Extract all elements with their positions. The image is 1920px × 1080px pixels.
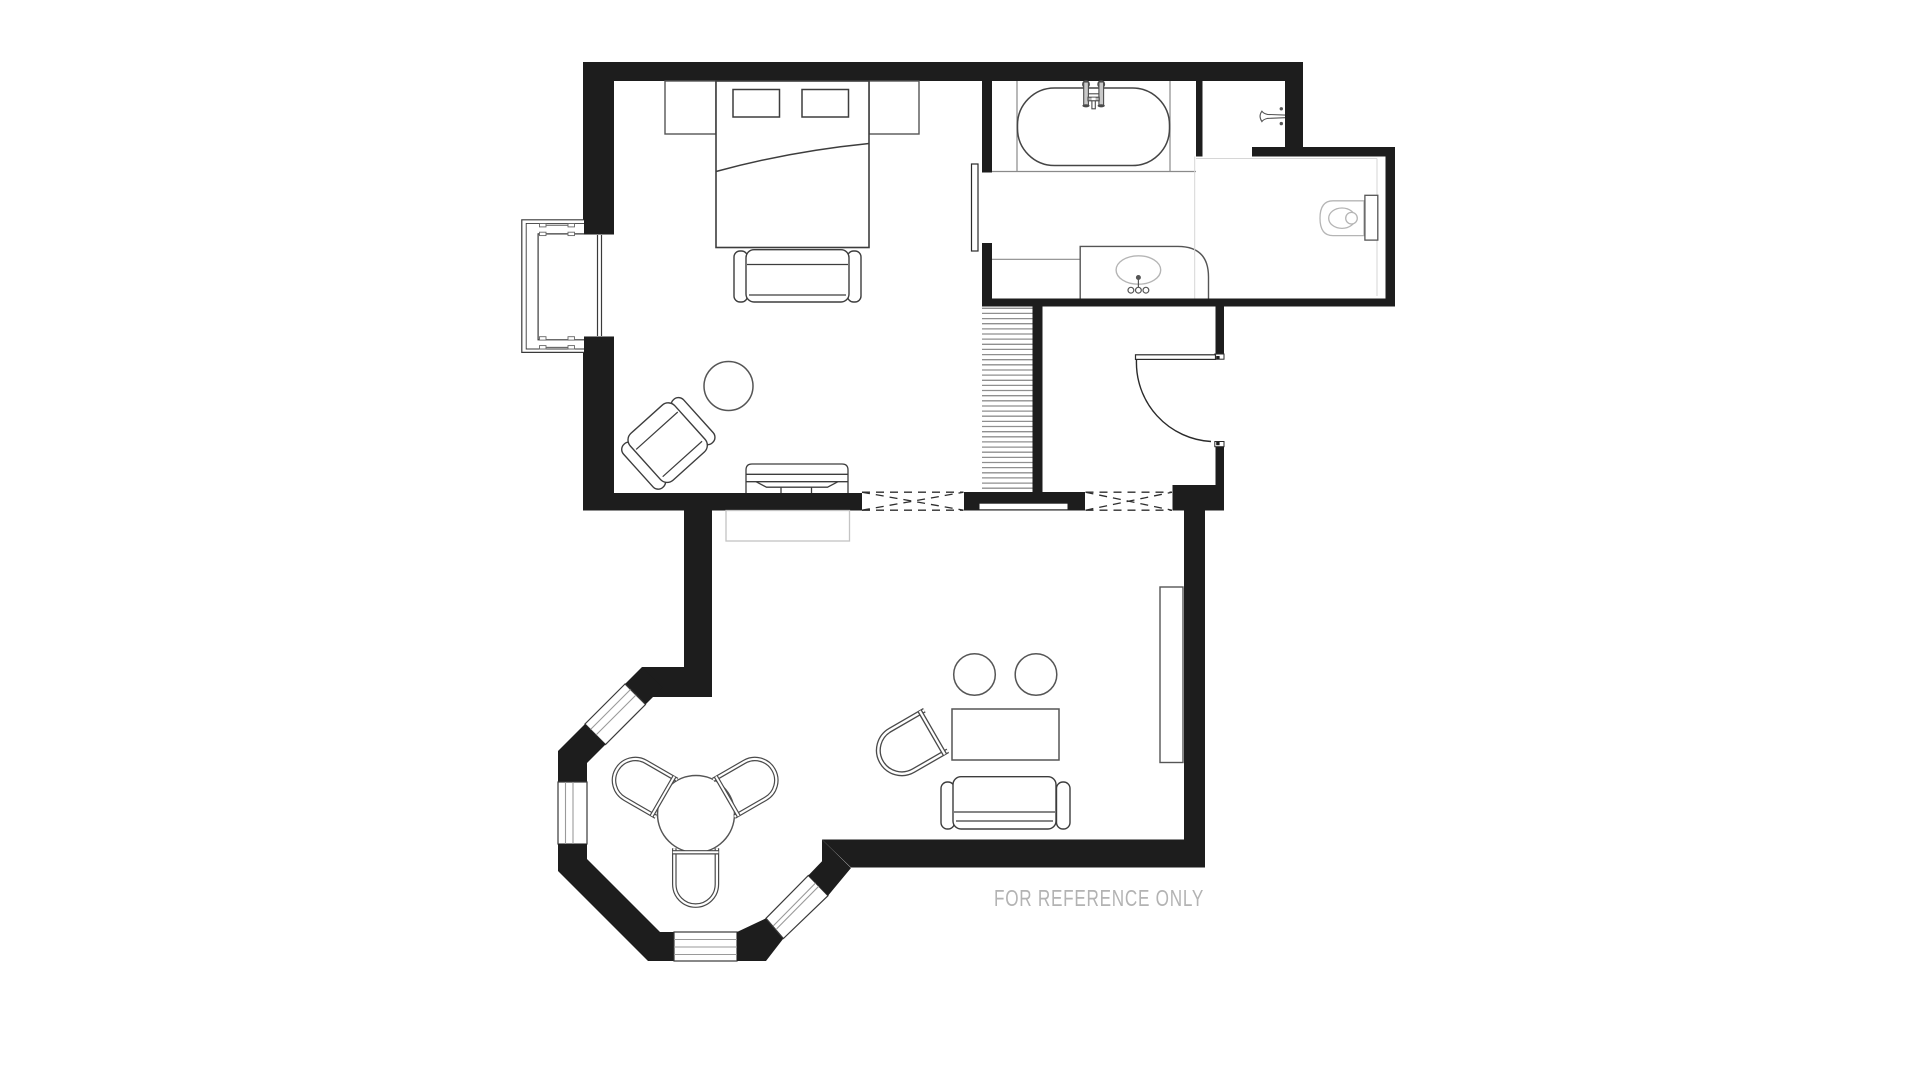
svg-text:FOR REFERENCE ONLY: FOR REFERENCE ONLY xyxy=(994,885,1204,911)
